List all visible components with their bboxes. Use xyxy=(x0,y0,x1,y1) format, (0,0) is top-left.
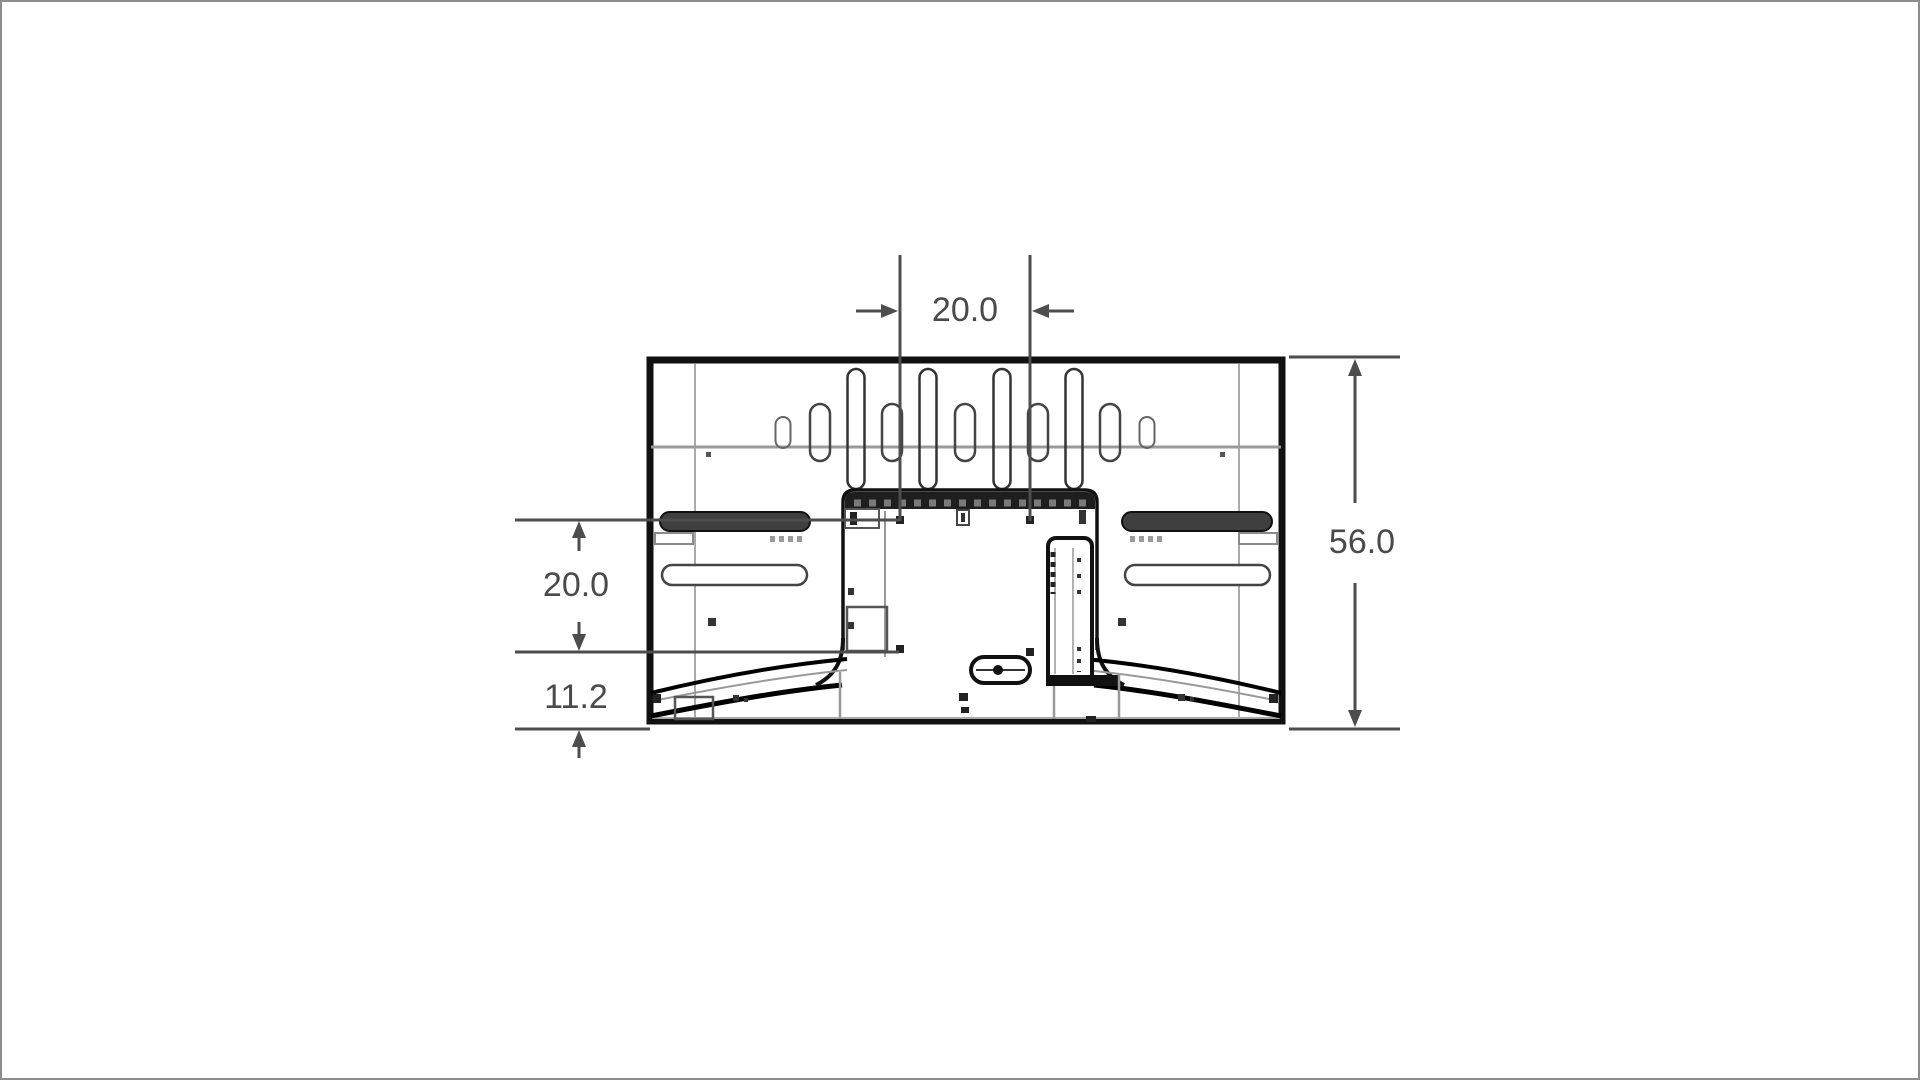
vesa-plate-top-bar xyxy=(845,492,1095,509)
drawing-canvas: 20.0 56.0 20.0 11.2 xyxy=(0,0,1920,1080)
tv-rear-linework xyxy=(2,2,1920,1080)
dimension-label-vesa-horizontal: 20.0 xyxy=(910,291,1020,329)
handle-bar-left-bottom xyxy=(662,565,807,585)
arrow-up-icon xyxy=(572,521,586,538)
arrow-right-icon xyxy=(881,304,898,318)
arrow-up-icon xyxy=(1348,359,1362,376)
handle-bar-right-top xyxy=(1122,512,1272,531)
dimension-label-bottom-offset: 11.2 xyxy=(521,678,631,716)
handle-bar-right-bottom xyxy=(1125,565,1270,585)
arrow-up-icon xyxy=(572,730,586,747)
dimension-label-overall-height: 56.0 xyxy=(1307,523,1417,561)
arrow-down-icon xyxy=(1348,710,1362,727)
arrow-left-icon xyxy=(1032,304,1049,318)
arrow-down-icon xyxy=(572,634,586,651)
connector-strip-foot xyxy=(1046,675,1120,686)
dimension-label-vesa-vertical: 20.0 xyxy=(521,566,631,604)
